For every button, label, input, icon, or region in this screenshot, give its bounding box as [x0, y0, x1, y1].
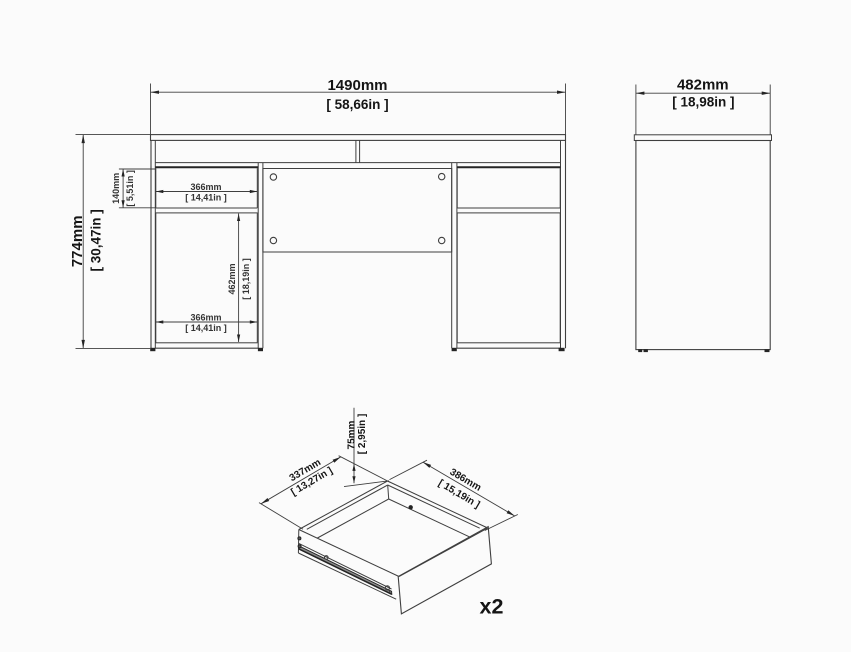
svg-text:[ 14,41in ]: [ 14,41in ] — [185, 193, 227, 203]
svg-text:774mm: 774mm — [69, 215, 86, 267]
svg-text:[ 18,98in ]: [ 18,98in ] — [672, 95, 734, 110]
svg-text:462mm: 462mm — [227, 263, 237, 294]
svg-text:[ 14,41in ]: [ 14,41in ] — [185, 323, 227, 333]
svg-text:366mm: 366mm — [190, 182, 221, 192]
svg-text:x2: x2 — [480, 595, 504, 619]
svg-text:[ 2,95in ]: [ 2,95in ] — [357, 414, 368, 455]
svg-text:[ 30,47in ]: [ 30,47in ] — [89, 209, 104, 271]
svg-text:1490mm: 1490mm — [327, 77, 387, 94]
svg-text:140mm: 140mm — [111, 173, 121, 204]
svg-text:482mm: 482mm — [677, 77, 729, 94]
svg-text:[ 5,51in ]: [ 5,51in ] — [125, 170, 135, 207]
svg-text:[ 18,19in ]: [ 18,19in ] — [241, 258, 251, 300]
svg-text:[ 58,66in ]: [ 58,66in ] — [326, 97, 388, 112]
svg-text:366mm: 366mm — [190, 313, 221, 323]
